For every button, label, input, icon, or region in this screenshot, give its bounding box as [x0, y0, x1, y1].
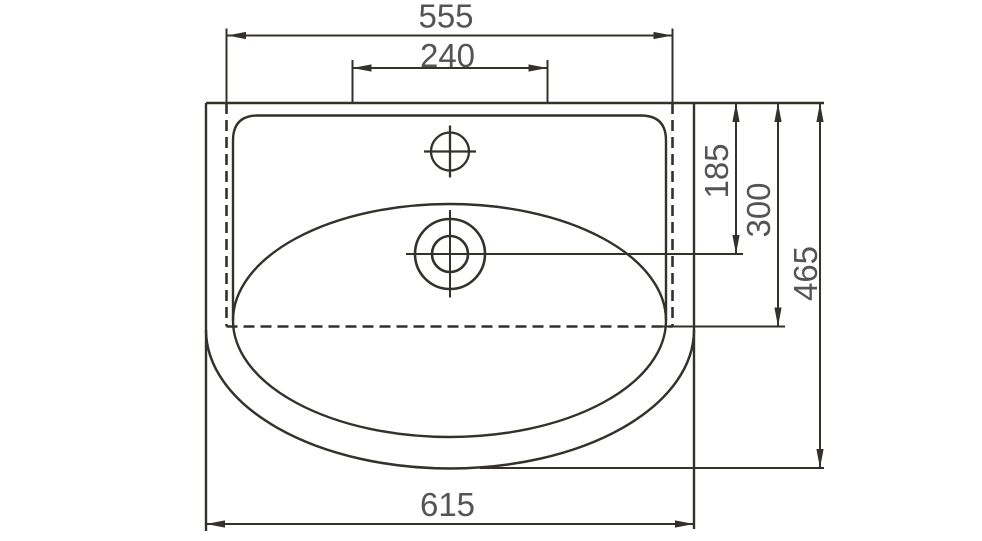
svg-text:555: 555 — [418, 0, 473, 35]
svg-text:465: 465 — [787, 246, 824, 301]
svg-text:185: 185 — [698, 143, 735, 198]
svg-text:615: 615 — [420, 486, 475, 523]
svg-text:240: 240 — [420, 37, 475, 74]
svg-text:300: 300 — [740, 182, 777, 237]
